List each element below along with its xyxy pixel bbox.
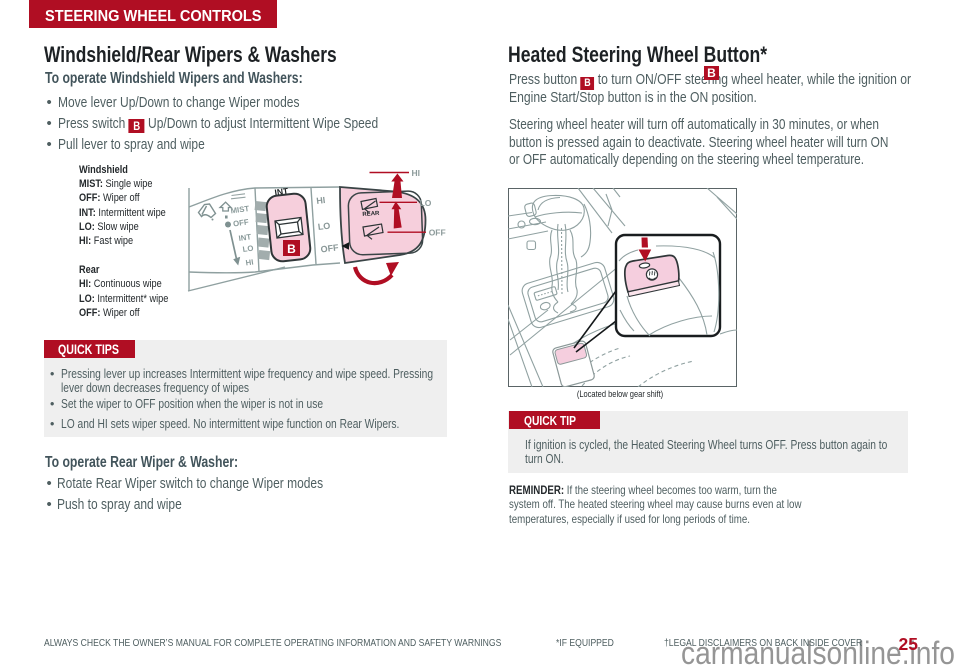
svg-text:OFF: OFF — [429, 228, 446, 238]
svg-text:OFF: OFF — [233, 217, 250, 228]
svg-text:MIST: MIST — [230, 204, 250, 216]
svg-text:OFF: OFF — [320, 242, 340, 254]
svg-text:HI: HI — [316, 195, 326, 206]
svg-text:INT: INT — [238, 232, 252, 243]
svg-text:HI: HI — [245, 257, 254, 267]
svg-text:HI: HI — [412, 168, 421, 178]
svg-text:REAR: REAR — [362, 211, 380, 218]
svg-text:LO: LO — [420, 198, 432, 208]
svg-text:LO: LO — [317, 221, 331, 232]
svg-text:LO: LO — [242, 244, 254, 254]
svg-text:B: B — [287, 242, 296, 256]
